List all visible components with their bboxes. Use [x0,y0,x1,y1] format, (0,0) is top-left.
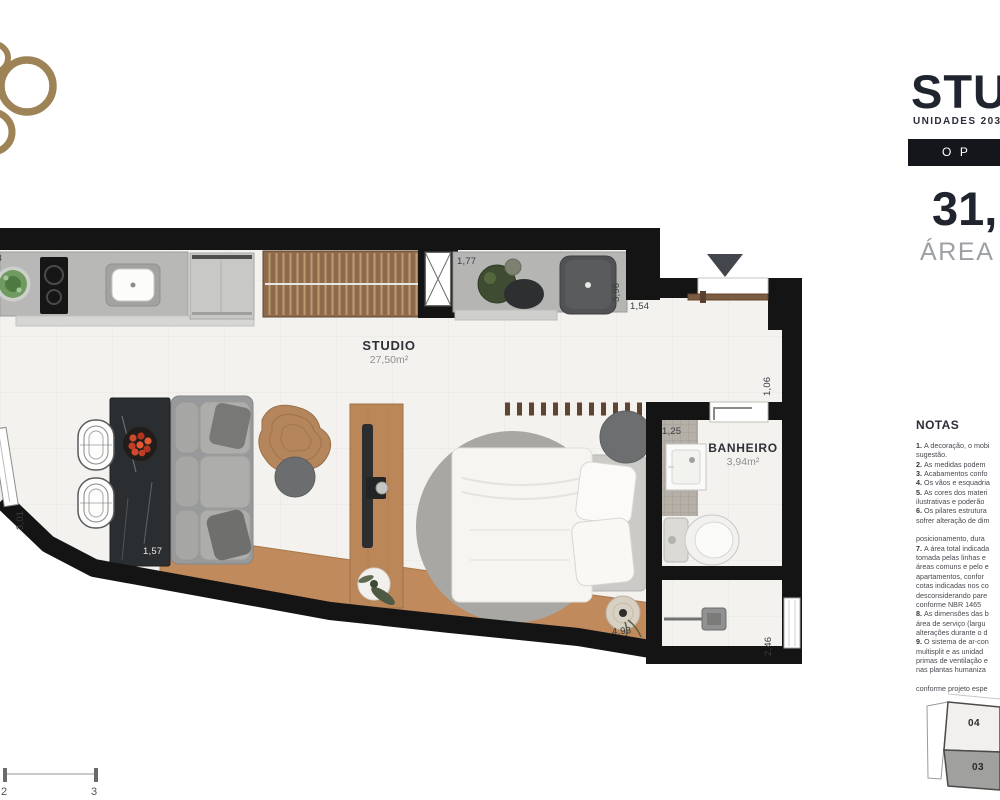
plan-drawing [0,0,1000,800]
note-line: conforme projeto espe [916,684,1000,693]
note-line: desconsiderando pare [916,591,1000,600]
note-line: posicionamento, dura [916,534,1000,543]
area-label: ÁREA [920,238,994,267]
sofa [171,396,253,564]
page-title: STU [911,64,1000,119]
keyplan-label-03: 03 [972,762,984,773]
refrigerator [190,253,254,319]
dim-kitchen-edge: 43 [0,253,2,264]
notes-panel: NOTAS 1. A decoração, o mobisugestão.2. … [916,418,1000,693]
scale-tick-2: 2 [1,786,7,798]
bathroom-door [710,402,768,422]
cooktop [40,257,68,314]
dining-table [110,398,170,566]
page-subtitle: UNIDADES 203 [913,116,1000,127]
entry-door [688,278,768,303]
note-line: áreas comuns e pelo e [916,562,1000,571]
ottoman [275,457,315,497]
dining-chair [78,478,114,528]
note-line: multisplit e as unidad [916,647,1000,656]
note-line: sugestão. [916,450,1000,459]
note-line: apartamentos, confor [916,572,1000,581]
pillow [575,461,638,525]
note-line: 6. Os pilares estrutura [916,506,1000,515]
note-line: alterações durante o d [916,628,1000,637]
note-line: 7. A área total indicada [916,544,1000,553]
notes-list: 1. A decoração, o mobisugestão.2. As med… [916,441,1000,693]
bathroom-area: 3,94m² [700,456,786,469]
note-line: área de serviço (largu [916,619,1000,628]
studio-area: 27,50m² [330,354,448,367]
kitchen-sink [106,264,160,306]
header-banner: O P [908,139,1000,166]
dim-counter-top: 1,77 [457,256,476,267]
note-line: cotas indicadas nos co [916,581,1000,590]
note-line [916,675,1000,684]
floor-plan-sheet: STUDIO 27,50m² BANHEIRO 3,94m² 1,77 3,96… [0,0,1000,800]
note-line: 2. As medidas podem [916,460,1000,469]
pouf [600,411,652,463]
scale-bar [3,768,98,782]
fruit-bowl [123,427,157,461]
note-line: sofrer alteração de dim [916,516,1000,525]
studio-name: STUDIO [330,338,448,354]
note-line: 5. As cores dos materi [916,488,1000,497]
laundry-counter [453,252,627,320]
dim-basin-side: 3,96 [611,283,622,302]
laundry-basin [560,256,616,314]
note-line: 1. A decoração, o mobi [916,441,1000,450]
brand-logo [0,44,53,152]
note-line: 3. Acabamentos confo [916,469,1000,478]
bed [452,448,646,602]
area-value: 31, [932,181,997,236]
keyplan [927,694,1000,790]
room-label-studio: STUDIO 27,50m² [330,338,448,367]
note-line: primas de ventilação e [916,656,1000,665]
dim-left-wall: 3,01 [15,511,26,530]
note-line: 8. As dimensões das b [916,609,1000,618]
note-line: nas plantas humaniza [916,665,1000,674]
note-line: 9. O sistema de ar-con [916,637,1000,646]
counter-plant [0,266,31,302]
dim-shower-side: 2,46 [763,637,774,656]
note-line: 4. Os vãos e esquadria [916,478,1000,487]
note-line: tomada pelas linhas e [916,553,1000,562]
notes-heading: NOTAS [916,418,1000,432]
dim-bed-wall: 4,93 [612,625,632,638]
keyplan-label-04: 04 [968,718,980,729]
dim-entry-side: 1,06 [762,377,773,396]
toilet-icon [664,515,739,565]
bathroom-name: BANHEIRO [700,441,786,456]
wardrobe [263,251,420,317]
dim-table: 1,57 [143,546,162,557]
pillow [571,517,635,587]
scale-tick-3: 3 [91,786,97,798]
dim-entry-top: 1,54 [630,301,649,312]
note-line: conforme NBR 1465 [916,600,1000,609]
note-line: ilustrativas e poderão [916,497,1000,506]
shower-window [784,598,800,648]
dining-chair [78,420,114,470]
note-line [916,525,1000,534]
dim-bath-top: 1,25 [662,426,681,437]
room-label-bathroom: BANHEIRO 3,94m² [700,441,786,469]
